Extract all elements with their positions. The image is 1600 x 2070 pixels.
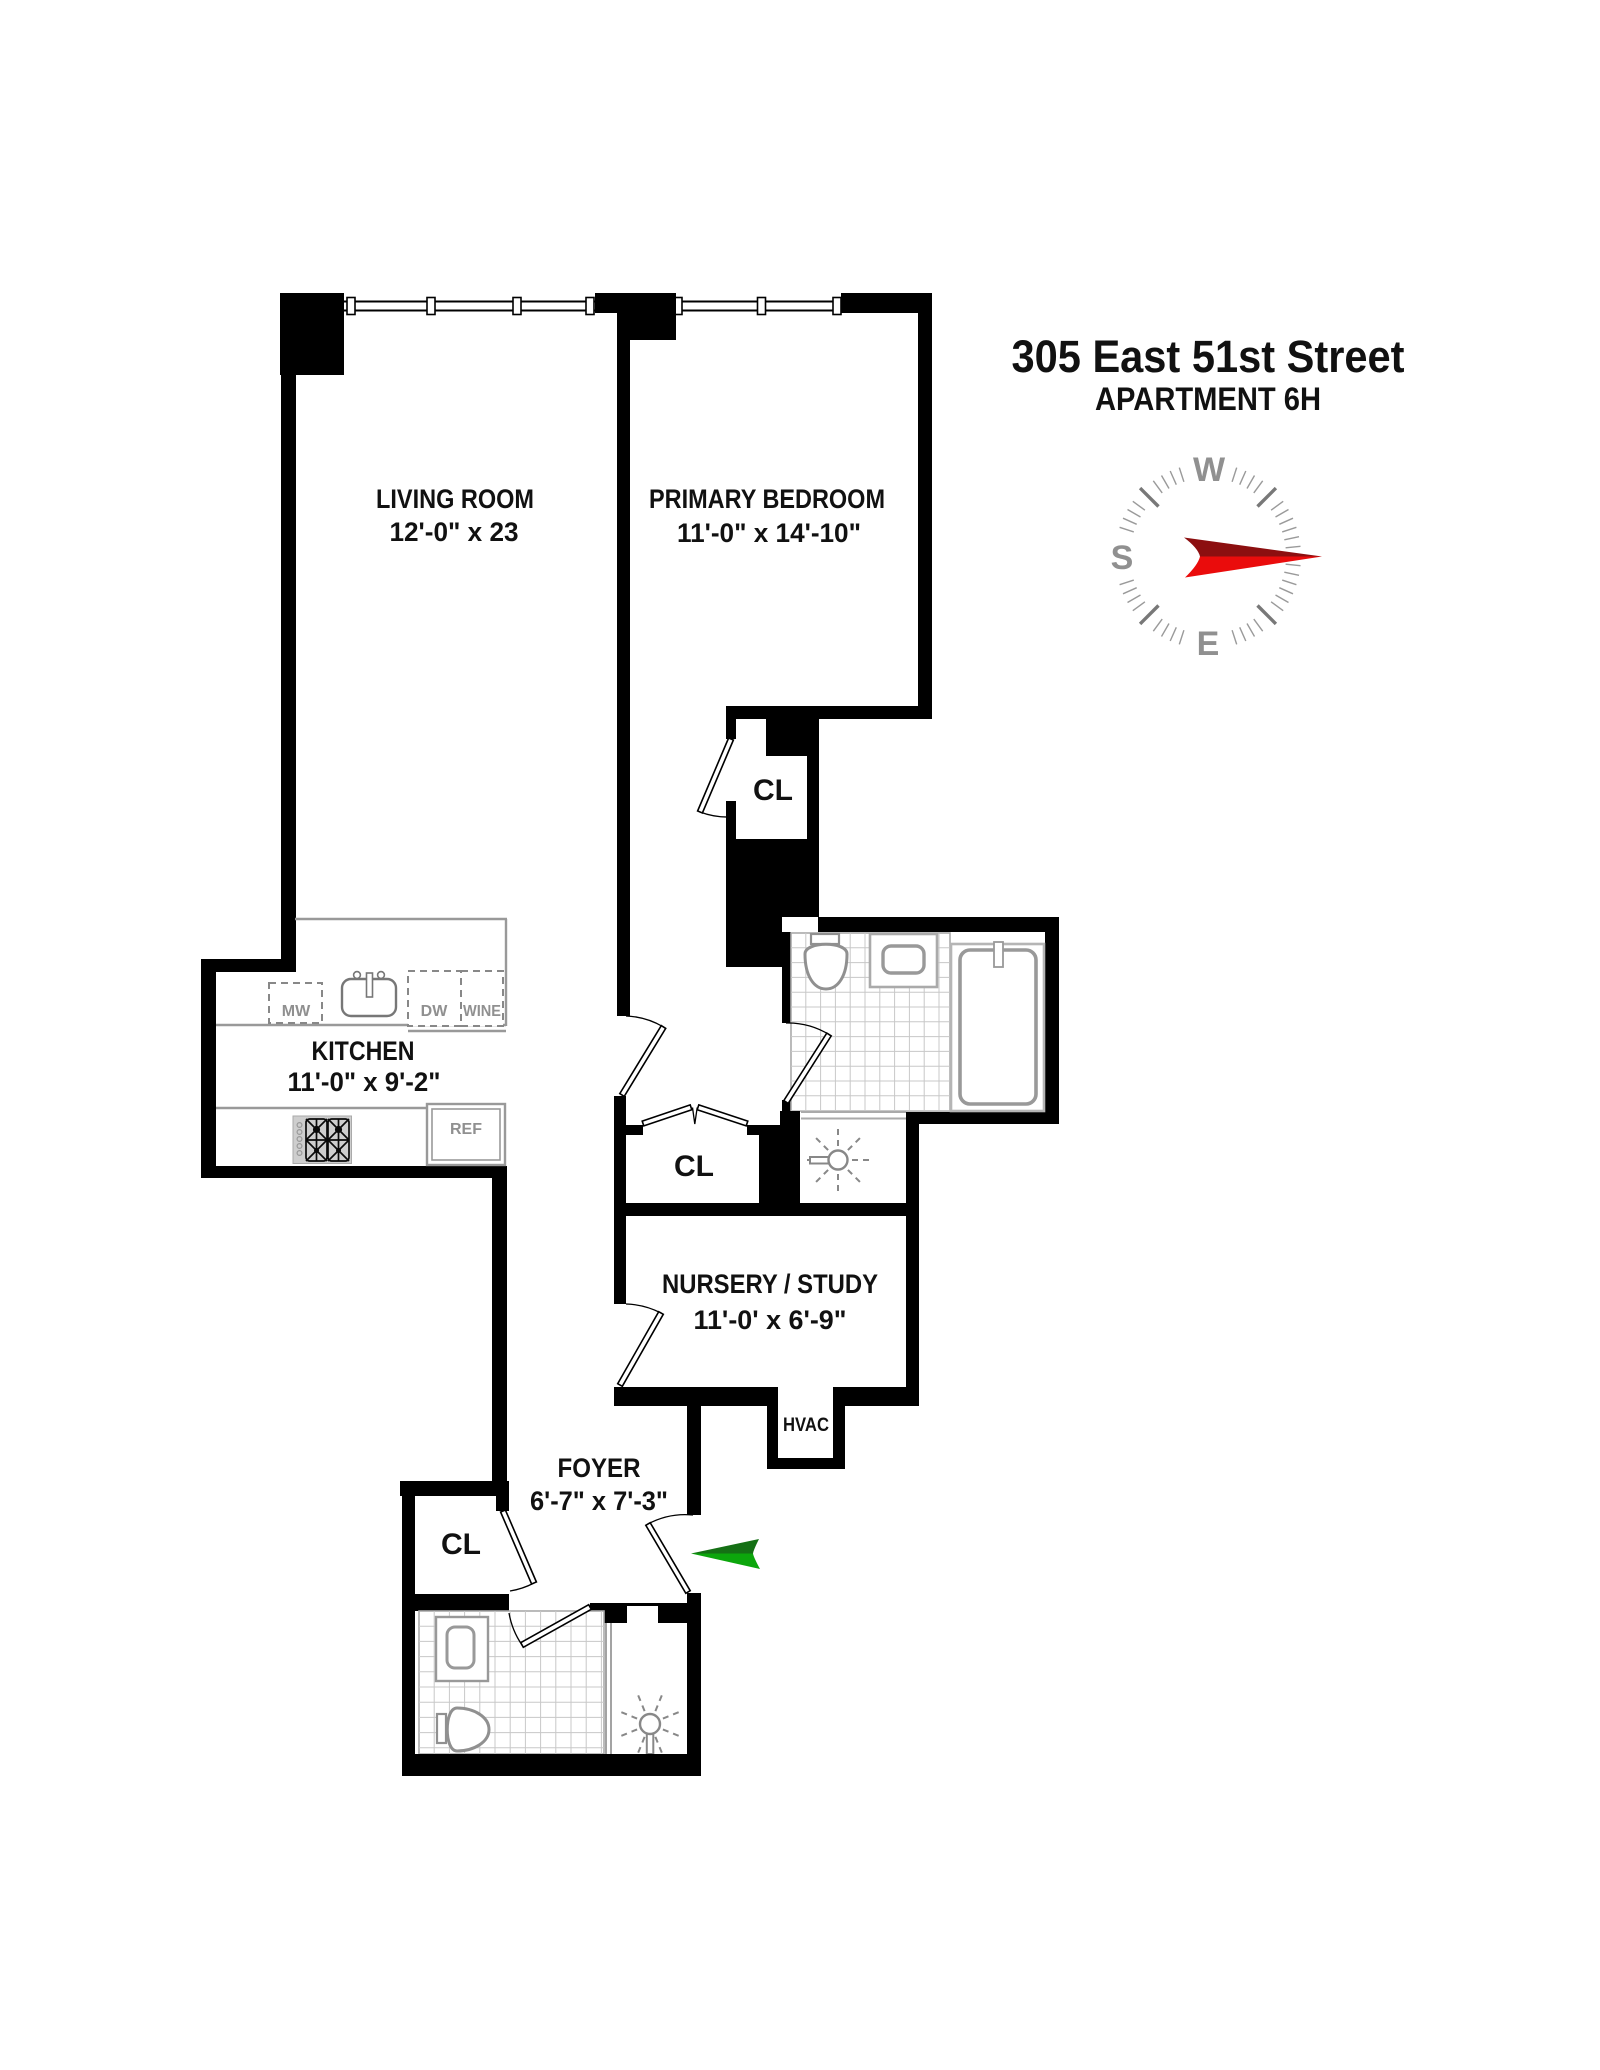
svg-text:305 East 51st Street: 305 East 51st Street [1012,331,1405,382]
svg-text:S: S [1111,539,1134,577]
svg-text:APARTMENT 6H: APARTMENT 6H [1095,381,1321,417]
svg-text:CL: CL [441,1528,481,1561]
svg-text:11'-0" x 9'-2": 11'-0" x 9'-2" [288,1067,441,1097]
svg-text:11'-0' x 6'-9": 11'-0' x 6'-9" [694,1305,847,1335]
svg-text:REF: REF [450,1121,482,1138]
svg-text:FOYER: FOYER [558,1453,641,1483]
svg-text:MW: MW [282,1003,311,1020]
svg-text:NURSERY / STUDY: NURSERY / STUDY [662,1269,878,1299]
svg-text:DW: DW [421,1003,449,1020]
svg-text:W: W [1193,451,1226,489]
svg-text:PRIMARY BEDROOM: PRIMARY BEDROOM [649,484,885,514]
svg-text:CL: CL [674,1150,714,1183]
svg-text:HVAC: HVAC [783,1415,829,1436]
svg-text:WINE: WINE [463,1003,501,1020]
svg-text:E: E [1197,625,1220,663]
svg-text:CL: CL [753,774,793,807]
svg-text:KITCHEN: KITCHEN [312,1036,415,1066]
svg-text:11'-0" x 14'-10": 11'-0" x 14'-10" [677,518,861,548]
svg-text:LIVING ROOM: LIVING ROOM [376,484,534,514]
svg-text:6'-7" x 7'-3": 6'-7" x 7'-3" [530,1486,668,1516]
svg-text:12'-0" x 23: 12'-0" x 23 [390,517,519,547]
